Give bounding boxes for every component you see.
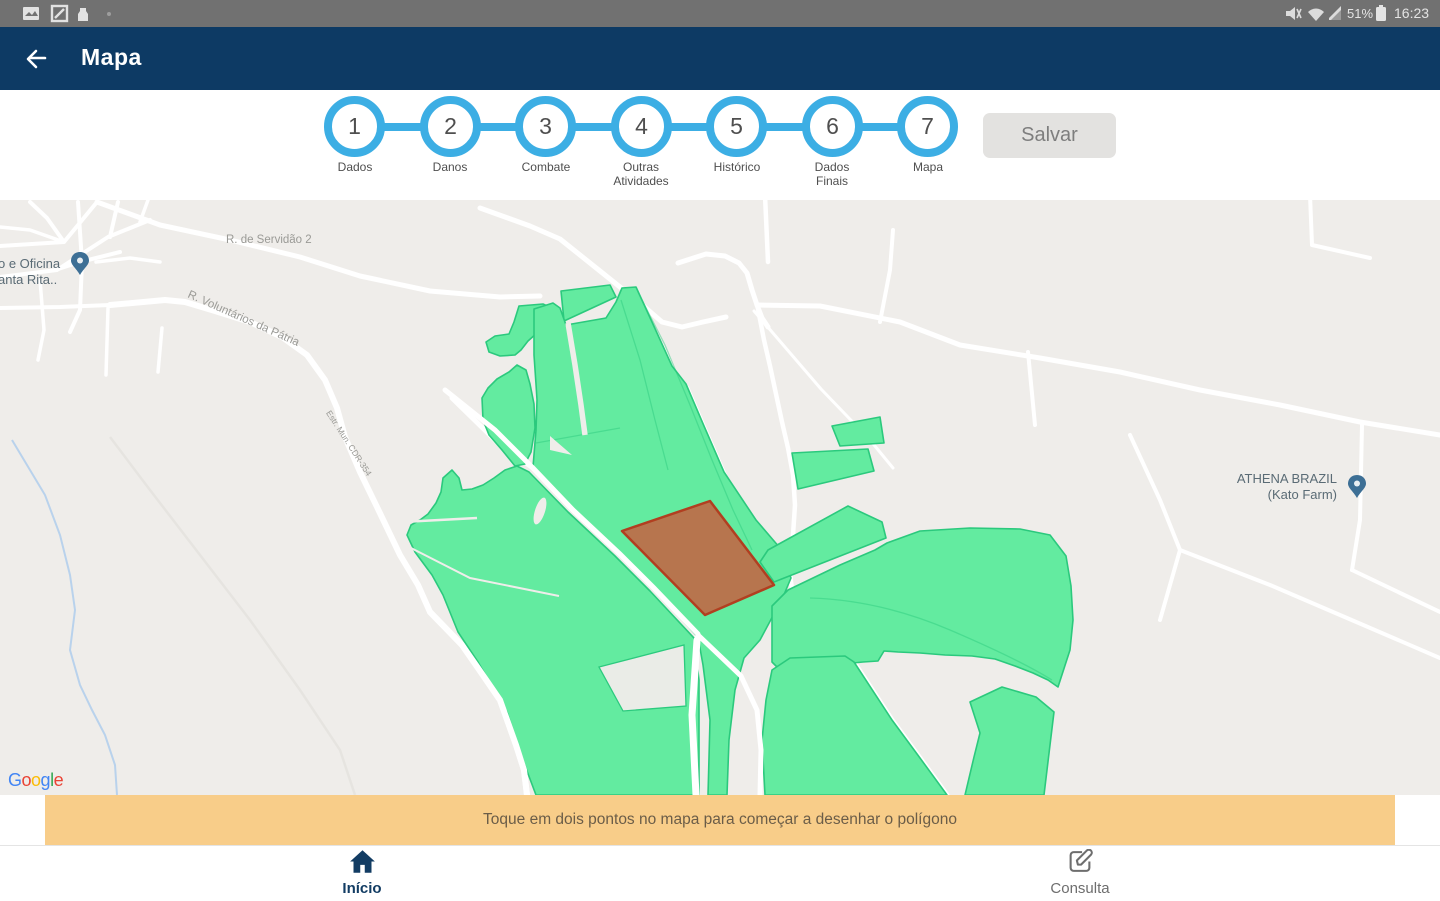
svg-text:anta Rita..: anta Rita.. bbox=[0, 272, 57, 287]
svg-text:o e Oficina: o e Oficina bbox=[0, 256, 61, 271]
svg-text:R. de Servidão 2: R. de Servidão 2 bbox=[226, 234, 312, 246]
svg-text:Google: Google bbox=[8, 770, 64, 790]
svg-text:51%: 51% bbox=[1347, 6, 1373, 21]
svg-text:16:23: 16:23 bbox=[1394, 5, 1429, 21]
svg-text:(Kato Farm): (Kato Farm) bbox=[1268, 487, 1337, 502]
svg-text:ATHENA BRAZIL: ATHENA BRAZIL bbox=[1237, 471, 1337, 486]
